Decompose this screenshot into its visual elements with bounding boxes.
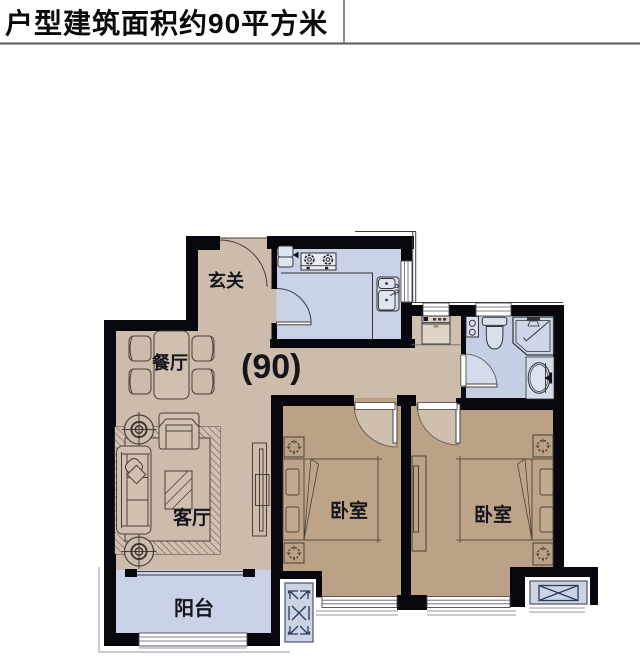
svg-text:卧室: 卧室 <box>474 503 512 526</box>
svg-text:阳台: 阳台 <box>174 596 214 620</box>
svg-text:户型建筑面积约90平方米: 户型建筑面积约90平方米 <box>5 7 328 39</box>
svg-text:卧室: 卧室 <box>330 499 368 522</box>
svg-text:玄关: 玄关 <box>208 270 244 291</box>
svg-text:餐厅: 餐厅 <box>151 352 188 373</box>
svg-text:客厅: 客厅 <box>173 506 211 529</box>
svg-text:(90): (90) <box>241 348 301 386</box>
